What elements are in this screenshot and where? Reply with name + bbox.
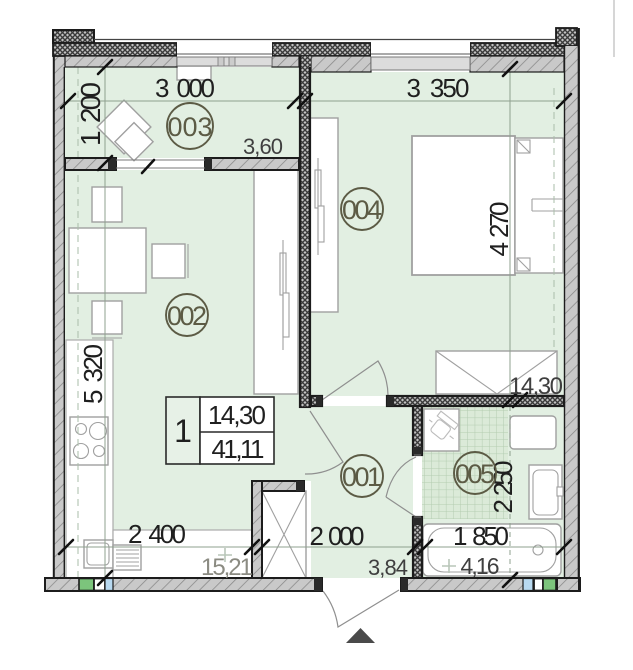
svg-text:004: 004: [342, 195, 382, 225]
svg-text:1 200: 1 200: [75, 82, 106, 146]
svg-text:2 400: 2 400: [128, 519, 186, 549]
svg-text:3 000: 3 000: [155, 73, 215, 103]
svg-text:002: 002: [167, 301, 207, 331]
svg-text:4 270: 4 270: [484, 202, 514, 257]
svg-text:003: 003: [168, 112, 213, 142]
svg-text:3,84: 3,84: [368, 555, 408, 580]
svg-text:14,30: 14,30: [509, 373, 563, 400]
svg-text:005: 005: [455, 459, 495, 489]
svg-text:4,16: 4,16: [461, 553, 500, 579]
svg-text:41,11: 41,11: [212, 434, 265, 464]
svg-text:15,21: 15,21: [201, 554, 253, 581]
svg-text:5 320: 5 320: [78, 344, 108, 404]
svg-text:1: 1: [174, 413, 192, 449]
svg-text:3 350: 3 350: [407, 73, 470, 103]
svg-text:2 000: 2 000: [310, 521, 365, 551]
svg-text:1 850: 1 850: [453, 521, 509, 551]
svg-text:3,60: 3,60: [243, 134, 283, 159]
svg-text:14,30: 14,30: [208, 400, 266, 430]
svg-text:001: 001: [342, 462, 382, 492]
